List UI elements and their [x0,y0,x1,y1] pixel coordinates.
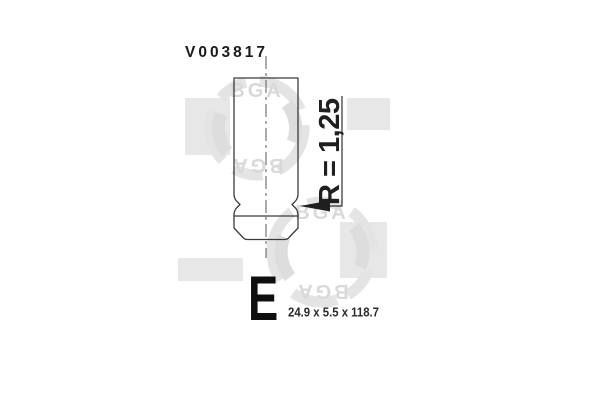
watermark-brand-text-inverted: BGA [230,154,283,176]
part-number-label: V003817 [185,44,265,61]
watermark-stamp-upper: BGA BGA [185,80,390,176]
diagram-svg: BGA BGA BGA BGA [0,0,600,400]
radius-dimension-label: R = 1,25 [314,98,346,205]
watermark-square [178,258,243,281]
valve-size-label: 24.9 x 5.5 x 118.7 [288,306,379,320]
watermark: BGA BGA BGA BGA [178,80,390,302]
valve-technical-drawing: BGA BGA BGA BGA [0,0,600,400]
watermark-blob [281,237,290,277]
watermark-brand-text: BGA [295,280,348,302]
watermark-blob [287,104,296,142]
watermark-stamp-lower: BGA BGA [178,202,387,302]
watermark-square [347,98,390,130]
watermark-brand-text: BGA [230,80,283,102]
valve-type-letter: E [248,263,278,334]
